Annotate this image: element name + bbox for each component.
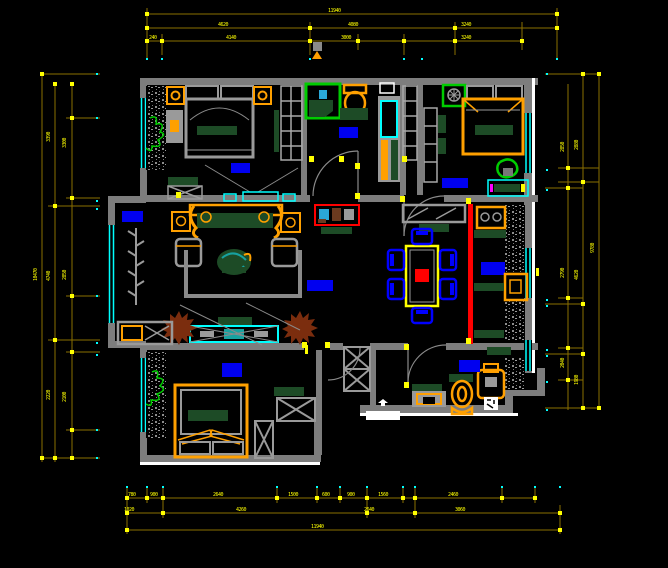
wardrobe-l-shaped [255, 398, 315, 458]
dim-text: 4740 [46, 270, 52, 281]
window-bedroom2-right [524, 113, 532, 173]
dim-text: 2460 [448, 492, 459, 498]
living-room [118, 205, 318, 345]
dimension-extension-lines-bottom [127, 488, 560, 534]
nightstand-right [254, 87, 271, 104]
tv-console-center [218, 317, 252, 325]
dim-text: 2220 [46, 389, 52, 400]
kitchen [474, 205, 527, 398]
bedroom1 [146, 86, 302, 201]
room-label-hall [307, 280, 333, 291]
dim-text: 4620 [574, 269, 580, 280]
room-label-bedroom2 [442, 178, 468, 188]
entry-marker-glyph [378, 399, 388, 406]
dimension-endpoints-bottom [126, 486, 561, 488]
counter-hatch-upper [505, 205, 525, 273]
room-label-kitchen [481, 262, 505, 275]
desk-chair [497, 159, 517, 177]
dim-text: 1560 [378, 492, 389, 498]
dim-text: 2880 [574, 139, 580, 150]
wardrobe [281, 86, 302, 160]
sofa-set [172, 205, 300, 238]
armchair-left [176, 239, 201, 266]
hatched-wall-panel [146, 86, 166, 170]
dim-text: 11940 [311, 524, 324, 530]
dim-text: 600 [322, 492, 330, 498]
counter-hatch-mid [505, 300, 525, 340]
coffee-table-plant [217, 249, 251, 275]
dimension-block-top: 11940 4620 4080 3240 240 4140 3000 3240 [145, 8, 559, 60]
dimension-extension-lines-right [545, 74, 599, 408]
kitchen-slider-red-line [468, 204, 473, 344]
sideboard [403, 205, 465, 232]
window-kitchen-right-lower [524, 340, 532, 371]
dim-text: 3240 [461, 35, 472, 41]
dimension-endpoints-top [146, 58, 558, 60]
floorplan-drawing: 11940 4620 4080 3240 240 4140 3000 3240 [0, 0, 668, 568]
sink [505, 274, 527, 300]
sofa-cushions [197, 213, 273, 228]
wardrobe-strip [438, 138, 446, 154]
dim-text: 2850 [62, 269, 68, 280]
bed-runner [197, 126, 237, 135]
fridge [478, 364, 504, 398]
room-label-bedroom1 [231, 163, 250, 173]
wardrobe-strip [274, 110, 279, 152]
cooktop [477, 207, 505, 228]
counter-strip-2 [474, 283, 504, 291]
bathroom-door-arc [313, 151, 358, 196]
dim-text: 240 [149, 35, 157, 41]
dim-text: 11940 [328, 8, 341, 14]
floor-drain-symbol [484, 397, 498, 410]
counter-strip-3 [474, 330, 504, 338]
dim-text: 4620 [218, 22, 229, 28]
dim-text: 3300 [62, 137, 68, 148]
window-bedroom1-left [140, 98, 147, 168]
cad-floorplan-canvas[interactable]: 11940 4620 4080 3240 240 4140 3000 3240 [0, 0, 668, 568]
dim-text: 3390 [46, 131, 52, 142]
bed-runner [475, 125, 513, 135]
bathroom [306, 83, 400, 196]
tv-bench-top [168, 177, 198, 186]
armchair-right [272, 239, 297, 266]
room-label-living [122, 211, 143, 222]
dim-text: 3060 [455, 507, 466, 513]
dim-text: 10470 [33, 268, 39, 281]
section-marker [312, 42, 322, 59]
dim-text: 4080 [348, 22, 359, 28]
tall-cabinet-orange [381, 140, 388, 180]
dimension-endpoints-left [96, 73, 98, 459]
dim-text: 2790 [560, 267, 566, 278]
room-label-bathroom [339, 127, 358, 138]
dimension-block-right: 2850 2790 2040 2880 4620 1980 9780 [545, 72, 601, 411]
counter-hatch-lower [503, 358, 525, 390]
hall-runner [321, 227, 352, 234]
dim-text: 900 [150, 492, 158, 498]
hall-closet [344, 347, 370, 391]
dim-text: 4140 [226, 35, 237, 41]
dining-room [388, 204, 473, 344]
tv-cabinet [190, 326, 278, 342]
desk [488, 180, 528, 196]
balcony-washer [118, 322, 172, 344]
dim-text: 2640 [364, 507, 375, 513]
bedroom3 [146, 352, 315, 458]
plant-pot-right [282, 311, 318, 345]
side-table-left [172, 212, 190, 231]
vanity-cabinet [378, 96, 400, 182]
side-table-right [281, 213, 300, 232]
dim-text: 2850 [560, 141, 566, 152]
sofa-arm-left [190, 206, 198, 238]
dim-text: 3000 [341, 35, 352, 41]
dim-text: 1020 [124, 507, 135, 513]
dimension-block-bottom: 780 900 2640 1500 600 900 1560 2460 1020… [124, 486, 562, 534]
shower-head [319, 90, 327, 99]
dim-text: 1980 [574, 374, 580, 385]
dim-text: 900 [347, 492, 355, 498]
dim-text: 1500 [288, 492, 299, 498]
counter-strip-1 [474, 230, 506, 238]
double-bed [186, 86, 253, 157]
dresser-knob [170, 120, 179, 132]
double-bed [175, 385, 247, 457]
window-bedroom3-left [140, 358, 147, 432]
room-label-entry [459, 360, 480, 372]
bath-mat [340, 108, 368, 120]
entry-text-block [366, 411, 400, 420]
entry-bench [487, 347, 511, 355]
dimension-block-left: 3300 2850 2100 3390 4740 2220 10470 [33, 72, 100, 462]
dim-text: 780 [128, 492, 136, 498]
nightstand-left [167, 87, 184, 104]
dim-text: 2640 [213, 492, 224, 498]
shoe-cabinet [412, 391, 446, 407]
window-living-left [108, 225, 115, 323]
table-centerpiece [415, 269, 429, 282]
tv-sightline-right [258, 168, 298, 192]
bed-runner [188, 410, 228, 421]
tall-cabinet-green [391, 140, 398, 180]
dimension-ticks-left [40, 72, 74, 460]
shower-shelf [309, 100, 333, 117]
dimension-endpoints-right [546, 73, 548, 411]
entry-door-arc [408, 345, 446, 383]
dim-text: 2040 [560, 357, 566, 368]
dimension-ticks-bottom [125, 496, 562, 532]
wardrobe [424, 108, 437, 182]
dining-table [406, 246, 438, 306]
dim-text: 9780 [590, 242, 596, 253]
coat-rack [128, 228, 144, 305]
dim-text: 2100 [62, 391, 68, 402]
double-bed [463, 86, 523, 154]
wardrobe-strip [438, 115, 446, 133]
wardrobe-strip [274, 387, 304, 396]
console-cabinet-red [315, 205, 359, 225]
shoe-cabinet-top-2 [412, 384, 442, 391]
dim-text: 3240 [461, 22, 472, 28]
sofa-arm-right [274, 206, 282, 238]
bedroom2 [424, 85, 528, 196]
dim-text: 4260 [236, 507, 247, 513]
room-label-bedroom3 [222, 363, 242, 377]
hatched-wall-panel [146, 352, 166, 438]
